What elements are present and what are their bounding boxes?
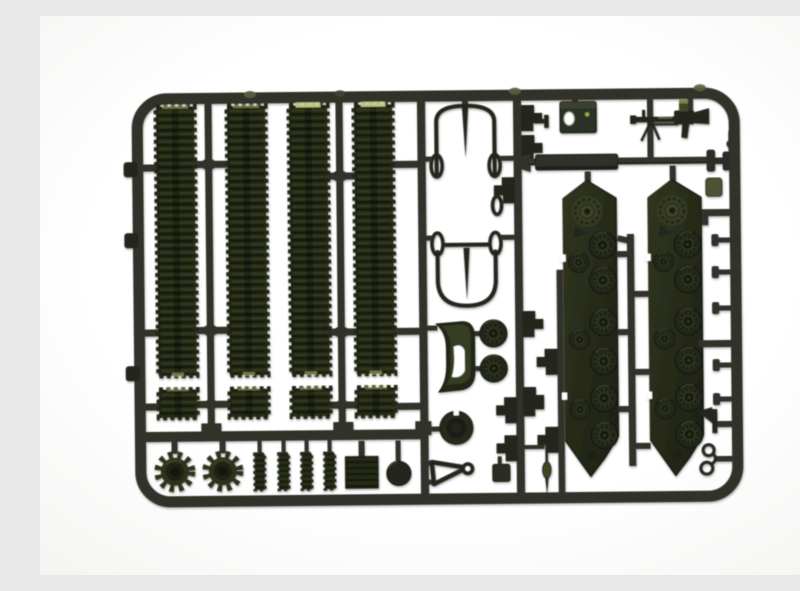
rail-junction — [201, 423, 221, 437]
mold-flash-highlight — [296, 102, 320, 107]
runner-mid-rail — [143, 434, 424, 437]
track-strip-long-4 — [354, 102, 395, 374]
muzzle — [630, 115, 636, 124]
rail-junction — [333, 422, 353, 436]
hatch-hole — [564, 112, 574, 125]
suspension-side-panel-1 — [560, 180, 619, 477]
track-strip-short-3 — [292, 386, 330, 416]
engine-hatch-box — [560, 101, 596, 132]
runner-rail — [208, 102, 211, 436]
track-strip-short-4 — [357, 385, 395, 415]
runner-rail — [339, 101, 342, 435]
suspension-side-panel-2 — [645, 179, 704, 476]
track-strip-short-2 — [230, 387, 268, 417]
track-strip-long-1 — [156, 105, 197, 377]
gate-tab-olive — [706, 178, 722, 196]
sprue-photo: Model kit sprue frame holding tank track… — [40, 16, 800, 575]
ring-notch — [454, 410, 459, 415]
track-strip-long-2 — [227, 104, 268, 376]
runner-rail — [560, 270, 562, 495]
receiver — [674, 110, 694, 124]
track-strip-short-1 — [159, 388, 197, 418]
mold-flash-highlight — [361, 102, 385, 107]
runner-rail — [630, 234, 632, 466]
track-strip-long-3 — [289, 103, 330, 375]
panel-tie — [698, 340, 735, 347]
front-sight — [642, 110, 645, 118]
